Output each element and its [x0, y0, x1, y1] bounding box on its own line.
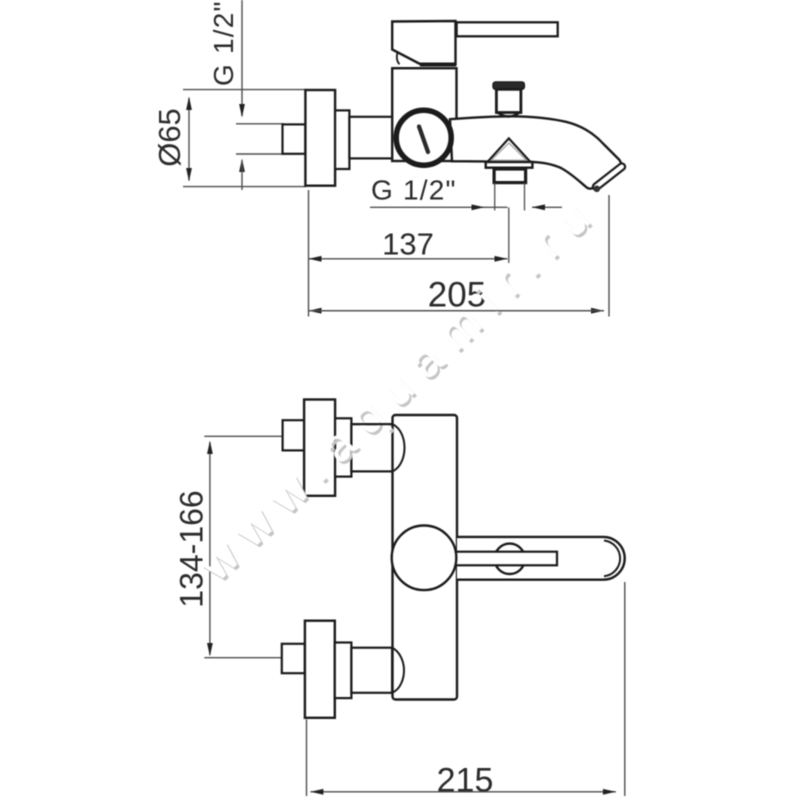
svg-text:G 1/2": G 1/2" [371, 175, 457, 206]
svg-text:G 1/2": G 1/2" [208, 0, 239, 86]
svg-text:Ø65: Ø65 [152, 108, 187, 167]
svg-text:137: 137 [382, 227, 434, 262]
svg-text:215: 215 [437, 762, 494, 800]
